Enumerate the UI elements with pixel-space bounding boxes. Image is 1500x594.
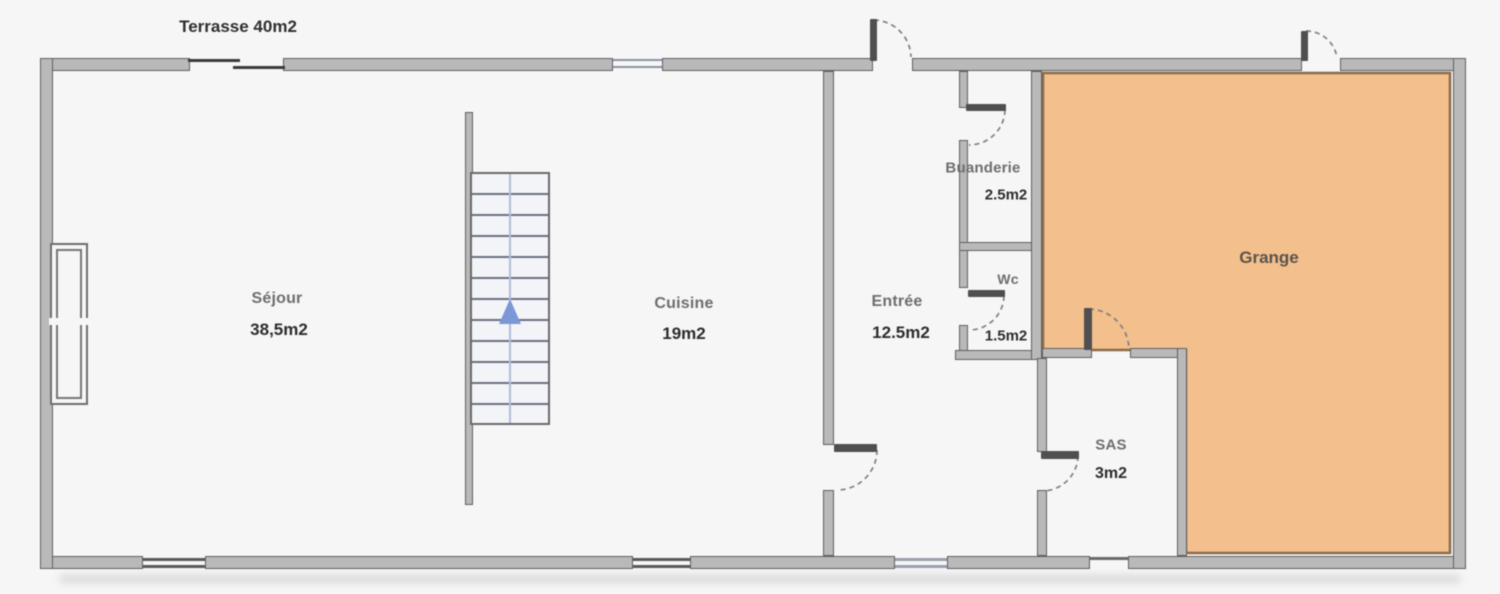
window-bottom-entree-line-2 <box>895 565 947 568</box>
window-bottom-sejour-line-1 <box>143 558 205 561</box>
wall-bottom-3 <box>690 556 895 569</box>
window-bottom-cuisine-line-2 <box>633 565 690 568</box>
wall-right <box>1453 58 1466 569</box>
wall-top-2 <box>283 58 613 71</box>
wall-buanderie-left-a <box>959 71 968 108</box>
wall-sas-left-lower <box>1037 490 1047 556</box>
window-left-sejour-gap <box>49 318 89 325</box>
sejour-label: Séjour <box>252 290 303 308</box>
sejour-area: 38,5m2 <box>250 320 308 340</box>
door-arc-wc <box>970 296 1004 330</box>
sas-area: 3m2 <box>1095 465 1127 483</box>
terrasse-slider-line-1 <box>188 59 240 62</box>
wall-bottom-1 <box>40 556 143 569</box>
buanderie-area: 2.5m2 <box>985 187 1028 204</box>
door-leaf-entree-top <box>870 19 877 61</box>
wall-bottom-5 <box>1128 556 1466 569</box>
door-leaf-wc <box>968 290 1005 297</box>
door-leaf-grange-top <box>1301 31 1308 61</box>
door-arc-cuisine <box>837 450 877 490</box>
wall-top-5 <box>1340 58 1466 71</box>
cuisine-area: 19m2 <box>662 324 705 344</box>
wc-label: Wc <box>997 271 1018 287</box>
cuisine-label: Cuisine <box>654 295 713 313</box>
door-leaf-grange-sas <box>1084 308 1092 350</box>
entree-label: Entrée <box>872 293 923 311</box>
wall-grange-left <box>1031 71 1042 360</box>
staircase <box>470 172 550 425</box>
door-leaf-sas <box>1041 451 1079 459</box>
wall-wc-bottom <box>955 350 1042 360</box>
window-top-cuisine-line-1 <box>613 59 662 61</box>
staircase-up-arrow-icon <box>499 299 521 324</box>
wall-top-4 <box>912 58 1302 71</box>
door-arc-entree-top <box>874 20 911 57</box>
door-arc-sas <box>1043 456 1078 491</box>
grange-label: Grange <box>1239 248 1299 268</box>
wall-bottom-4 <box>947 556 1090 569</box>
door-arc-buanderie <box>969 110 1005 145</box>
floor-plan: Terrasse 40m2 Séjour 38,5m2 Cuisine 19m2… <box>0 0 1500 594</box>
wall-cuisine-entree-lower <box>823 490 834 556</box>
door-arc-grange-top <box>1306 31 1337 58</box>
window-bottom-sejour-line-2 <box>143 565 205 568</box>
wall-cuisine-entree-upper <box>823 71 834 445</box>
sas-label: SAS <box>1095 437 1126 454</box>
wall-sas-left-upper <box>1037 358 1047 452</box>
wall-buanderie-wc-divider <box>959 242 1040 251</box>
terrasse-slider-line-2 <box>233 66 285 69</box>
window-bottom-cuisine-line-1 <box>633 558 690 561</box>
wall-sas-right <box>1177 348 1187 556</box>
door-leaf-buanderie <box>966 104 1006 111</box>
sas-bottom-door-threshold <box>1090 557 1128 560</box>
window-top-cuisine-line-2 <box>613 66 662 68</box>
buanderie-label: Buanderie <box>945 160 1020 177</box>
entree-area: 12.5m2 <box>872 323 930 343</box>
wall-top-1 <box>40 58 190 71</box>
door-leaf-cuisine <box>834 444 877 452</box>
wall-top-3 <box>662 58 873 71</box>
plan-vector-layer <box>0 0 1500 594</box>
wall-bottom-2 <box>205 556 633 569</box>
terrasse-label: Terrasse 40m2 <box>179 17 297 37</box>
window-bottom-entree-line-1 <box>895 558 947 561</box>
wc-area: 1.5m2 <box>985 328 1028 345</box>
